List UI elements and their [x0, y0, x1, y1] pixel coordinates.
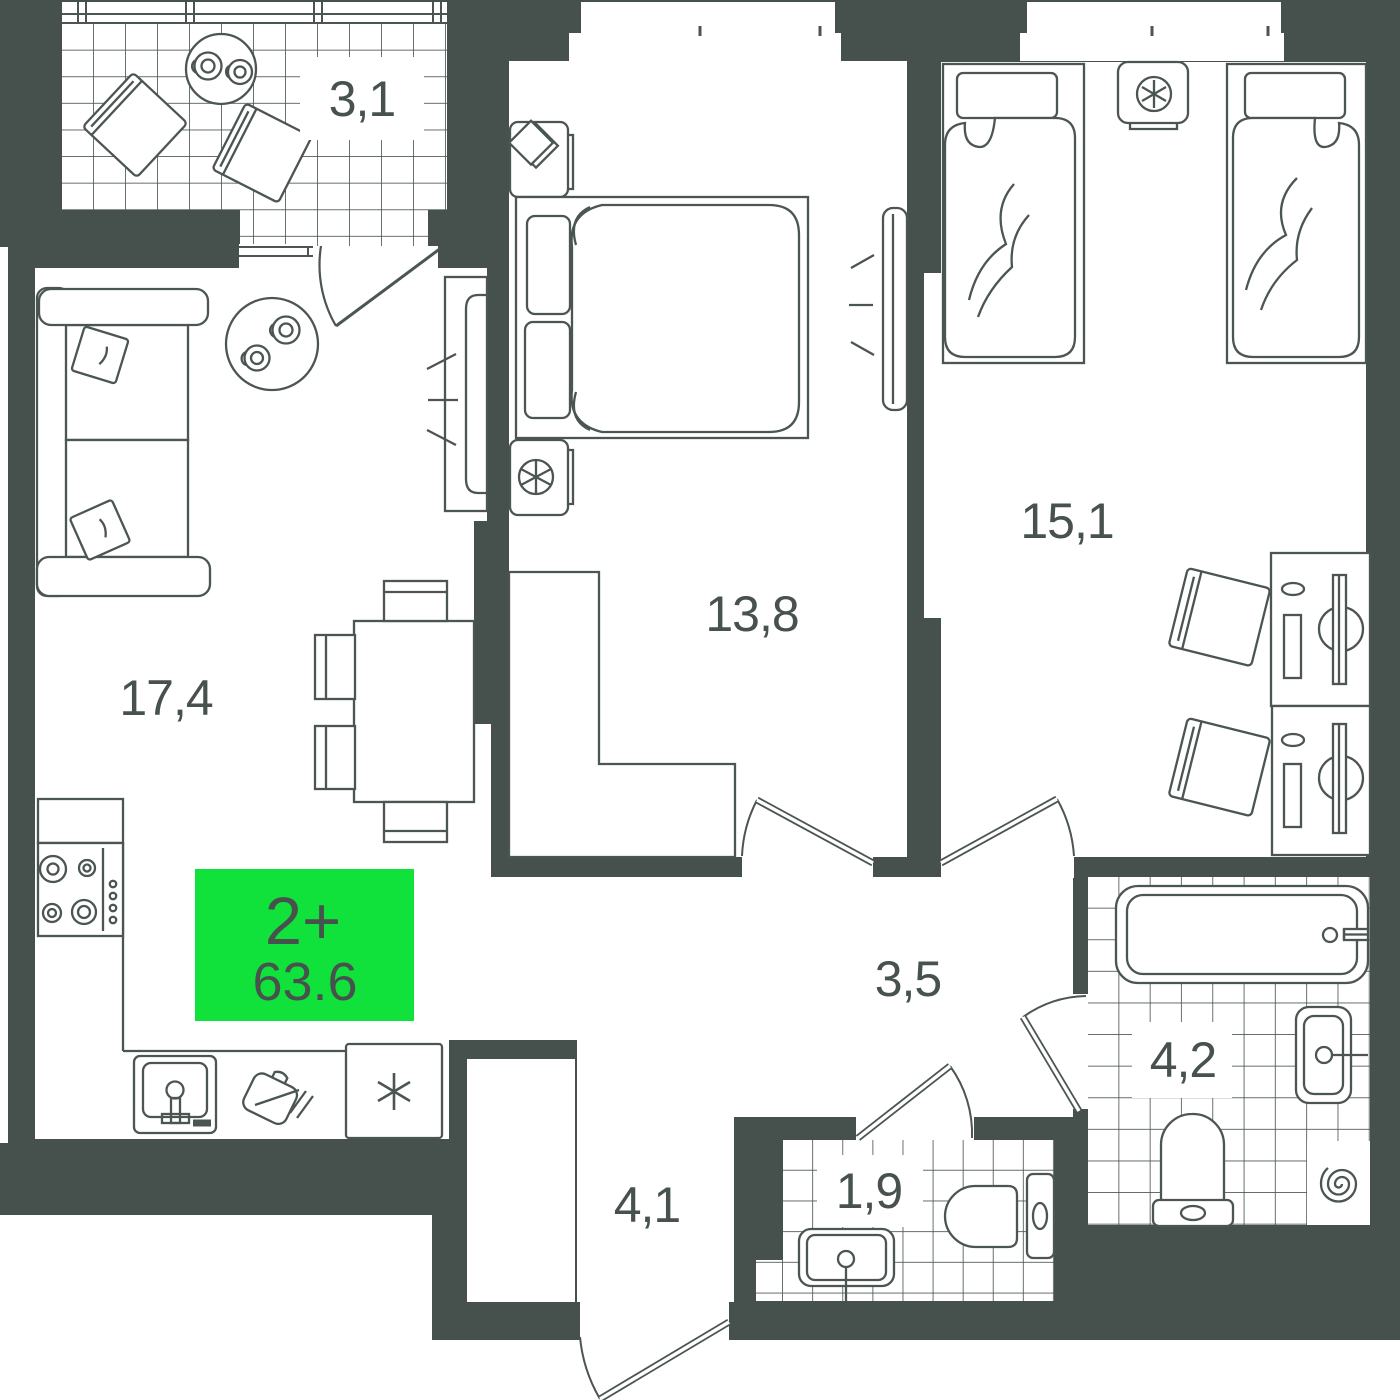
svg-text:3,5: 3,5 — [875, 951, 942, 1007]
svg-text:15,1: 15,1 — [1020, 493, 1113, 549]
svg-text:3,1: 3,1 — [329, 71, 396, 127]
svg-text:4,2: 4,2 — [1150, 1032, 1217, 1088]
svg-text:2+: 2+ — [265, 884, 341, 959]
svg-text:17,4: 17,4 — [119, 670, 213, 726]
svg-text:1,9: 1,9 — [836, 1163, 903, 1219]
svg-text:13,8: 13,8 — [705, 586, 798, 642]
svg-text:63.6: 63.6 — [252, 952, 357, 1012]
svg-text:4,1: 4,1 — [614, 1177, 681, 1233]
